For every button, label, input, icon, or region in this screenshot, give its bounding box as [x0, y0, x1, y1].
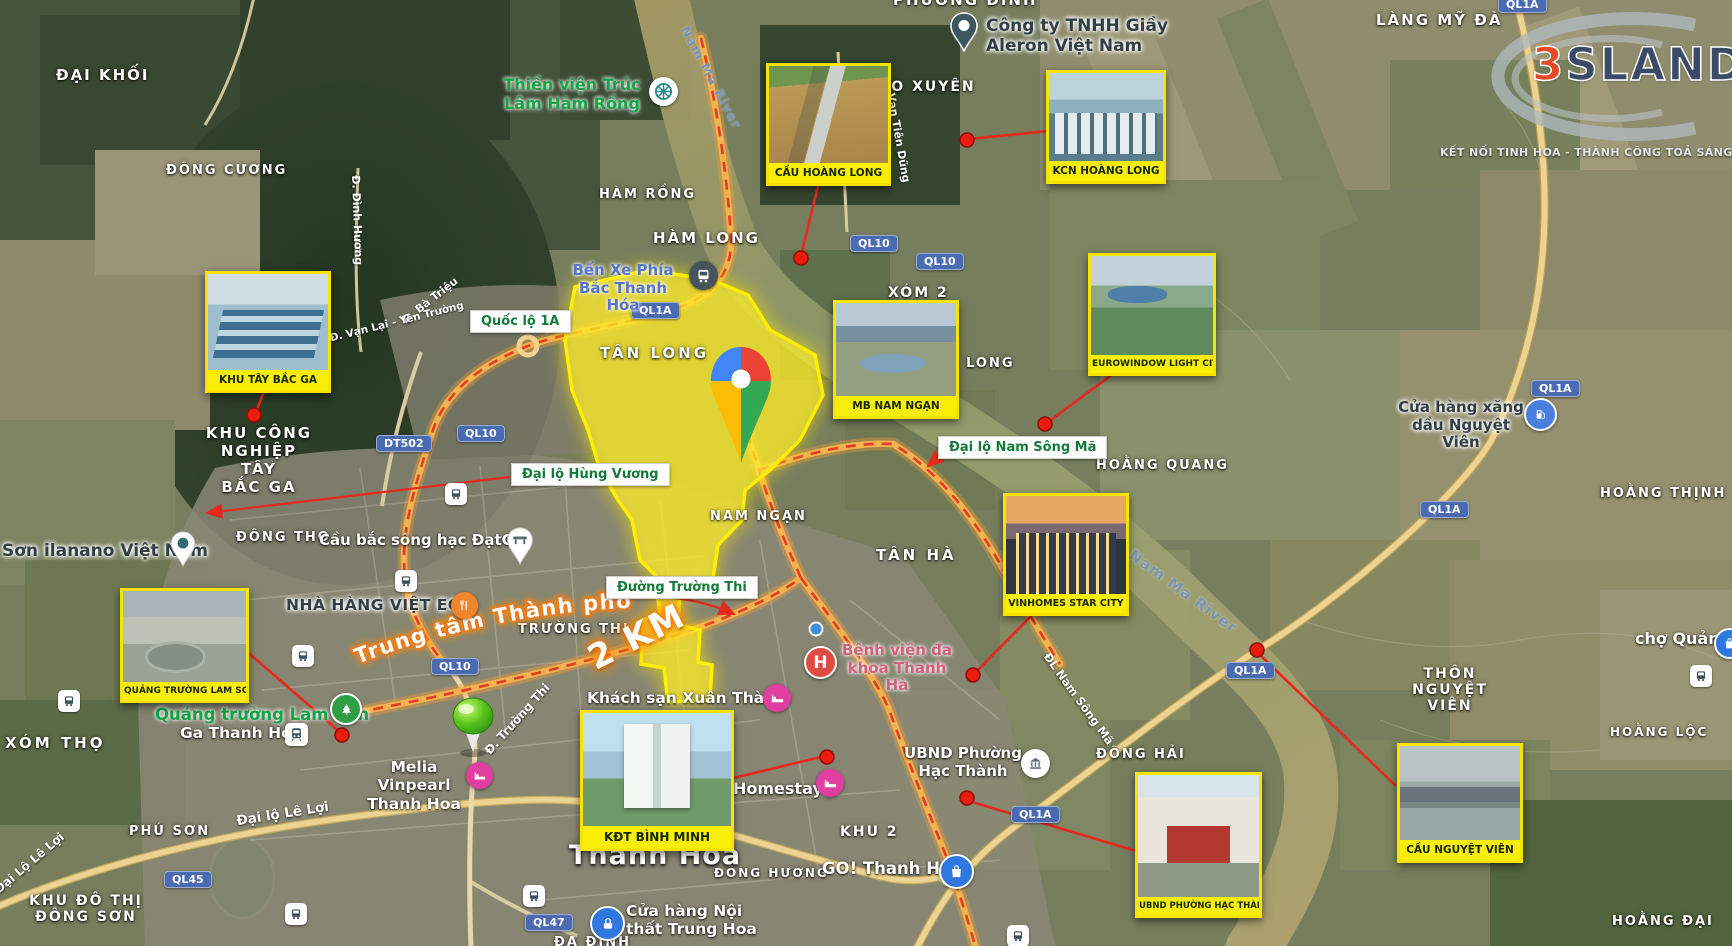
bus-icon[interactable]: [523, 885, 545, 907]
poi-cau-bac-song-hac[interactable]: Cầu bắc sông hạc ĐạtGP: [319, 532, 525, 550]
callout-eurowindow[interactable]: EUROWINDOW LIGHT CITY: [1088, 253, 1216, 376]
gov-icon[interactable]: [1021, 749, 1050, 778]
callout-label: QUẢNG TRƯỜNG LAM SƠN: [123, 682, 246, 700]
callout-label: CẦU NGUYỆT VIÊN: [1400, 840, 1520, 860]
callout-mb-nam-ngan[interactable]: MB NAM NGẠN: [833, 300, 959, 419]
badge-ql45: QL45: [164, 871, 212, 888]
logo-tagline: KẾT NỐI TINH HOA - THÀNH CÔNG TOẢ SÁNG: [1440, 146, 1732, 159]
callout-label: UBND PHƯỜNG HẠC THÀNH: [1138, 897, 1259, 915]
callout-label: VINHOMES STAR CITY: [1006, 594, 1126, 613]
poi-ubnd-hac-thanh[interactable]: UBND Phường Hạc Thành: [902, 745, 1024, 780]
callout-label: CẦU HOÀNG LONG: [769, 163, 888, 183]
hotel-icon[interactable]: [763, 684, 791, 712]
badge-ql1a: QL1A: [1011, 806, 1060, 823]
bus-icon[interactable]: [292, 645, 314, 667]
blue-dot: [810, 623, 823, 636]
badge-ql10: QL10: [457, 425, 505, 442]
hotel-icon[interactable]: [466, 762, 493, 789]
callout-photo: [1138, 775, 1259, 897]
poi-aleron[interactable]: Công ty TNHH Giầy Aleron Việt Nam: [986, 16, 1168, 56]
road-box-dai-lo-hung-vuong: Đại lộ Hùng Vương: [511, 463, 670, 486]
brand-logo: 3SLAND KẾT NỐI TINH HOA - THÀNH CÔNG TOẢ…: [1440, 0, 1732, 180]
poi-noi-that-trung-hoa[interactable]: Cửa hàng Nội thất Trung Hoa: [626, 902, 757, 939]
callout-cau-hoang-long[interactable]: CẦU HOÀNG LONG: [766, 63, 891, 186]
logo-wordmark: 3SLAND: [1532, 38, 1732, 91]
factory-pin-icon[interactable]: [950, 12, 978, 52]
callout-photo: [1091, 256, 1213, 355]
map-screenshot: Trung tâm Thành phố ĐẠI KHỐI ĐÔNG CƯƠNG …: [0, 0, 1732, 946]
hospital-icon[interactable]: H: [804, 646, 837, 679]
poi-homestay[interactable]: Homestay: [733, 780, 823, 799]
poi-viet-eco[interactable]: NHÀ HÀNG VIỆT ECO: [286, 596, 473, 614]
callout-photo: [1400, 746, 1520, 840]
poi-khach-san-xuan-thanh[interactable]: Khách sạn Xuân Thành: [587, 689, 786, 707]
callout-photo: [1049, 73, 1163, 161]
road-box-duong-truong-thi: Đường Trường Thi: [606, 576, 758, 599]
callout-label: KHU TÂY BẮC GA: [208, 370, 328, 390]
hotel-icon[interactable]: [816, 769, 844, 797]
callout-photo: [208, 274, 328, 370]
poi-ga-thanh-hoa[interactable]: Ga Thanh Hóa: [180, 724, 302, 742]
badge-dt502: DT502: [376, 435, 432, 452]
paint-pin-icon[interactable]: [170, 531, 196, 567]
badge-ql1a: QL1A: [1226, 662, 1275, 679]
callout-label: MB NAM NGẠN: [836, 396, 956, 416]
badge-ql10: QL10: [850, 235, 898, 252]
callout-photo: [769, 66, 888, 163]
park-icon[interactable]: [330, 693, 362, 725]
road-box-dai-lo-nam-song-ma: Đại lộ Nam Sông Mã: [938, 436, 1107, 459]
gas-icon[interactable]: [1524, 398, 1557, 431]
callout-photo: [123, 591, 246, 682]
callout-ubnd-hac-thanh[interactable]: UBND PHƯỜNG HẠC THÀNH: [1135, 772, 1262, 918]
poi-melia-vinpearl[interactable]: Melia Vinpearl Thanh Hoa: [355, 758, 473, 813]
lock-icon[interactable]: [590, 906, 625, 941]
callout-kcn-hoang-long[interactable]: KCN HOÀNG LONG: [1046, 70, 1166, 184]
callout-kdt-binh-minh[interactable]: KĐT BÌNH MINH: [580, 710, 734, 851]
callout-khu-tay-bac-ga[interactable]: KHU TÂY BẮC GA: [205, 271, 331, 393]
restaurant-icon[interactable]: [451, 592, 478, 619]
poi-benh-vien-thanh-ha[interactable]: Bệnh viện đa khoa Thanh Hà: [836, 642, 958, 695]
connector-lines: [207, 131, 1396, 851]
callout-vinhomes-star-city[interactable]: VINHOMES STAR CITY: [1003, 493, 1129, 616]
bus-icon[interactable]: [1007, 925, 1029, 946]
badge-ql10: QL10: [916, 253, 964, 270]
shop-icon[interactable]: [939, 854, 974, 889]
callout-label: EUROWINDOW LIGHT CITY: [1091, 355, 1213, 373]
bridge-pin-icon[interactable]: [506, 527, 534, 565]
badge-ql10: QL10: [431, 658, 479, 675]
bus-icon[interactable]: [58, 690, 80, 712]
callout-photo: [836, 303, 956, 396]
poi-xang-dau-nguyet-vien[interactable]: Cửa hàng xăng dầu Nguyệt Viên: [1396, 399, 1526, 452]
bus-icon[interactable]: [445, 483, 467, 505]
callout-photo: [583, 713, 731, 826]
road-box-quoc-lo-1a: Quốc lộ 1A: [470, 310, 571, 333]
bus-icon[interactable]: [395, 570, 417, 592]
callout-label: KCN HOÀNG LONG: [1049, 161, 1163, 181]
bus-station-icon[interactable]: [689, 261, 718, 290]
bus-icon[interactable]: [285, 903, 307, 925]
callout-quang-truong-lam-son[interactable]: QUẢNG TRƯỜNG LAM SƠN: [120, 588, 249, 703]
callout-photo: [1006, 496, 1126, 594]
poi-ben-xe[interactable]: Bến Xe Phía Bắc Thanh Hóa: [560, 262, 686, 315]
project-pin-icon[interactable]: [453, 698, 493, 757]
badge-ql1a: QL1A: [1531, 380, 1580, 397]
badge-ql47: QL47: [525, 914, 573, 931]
train-icon[interactable]: [285, 723, 308, 746]
callout-cau-nguyet-vien[interactable]: CẦU NGUYỆT VIÊN: [1397, 743, 1523, 863]
temple-icon[interactable]: [649, 77, 678, 106]
callout-label: KĐT BÌNH MINH: [583, 826, 731, 848]
badge-ql1a: QL1A: [1420, 501, 1469, 518]
bus-icon[interactable]: [1690, 665, 1712, 687]
poi-thien-vien[interactable]: Thiền viện Trúc Lâm Hàm Rồng: [498, 76, 646, 114]
